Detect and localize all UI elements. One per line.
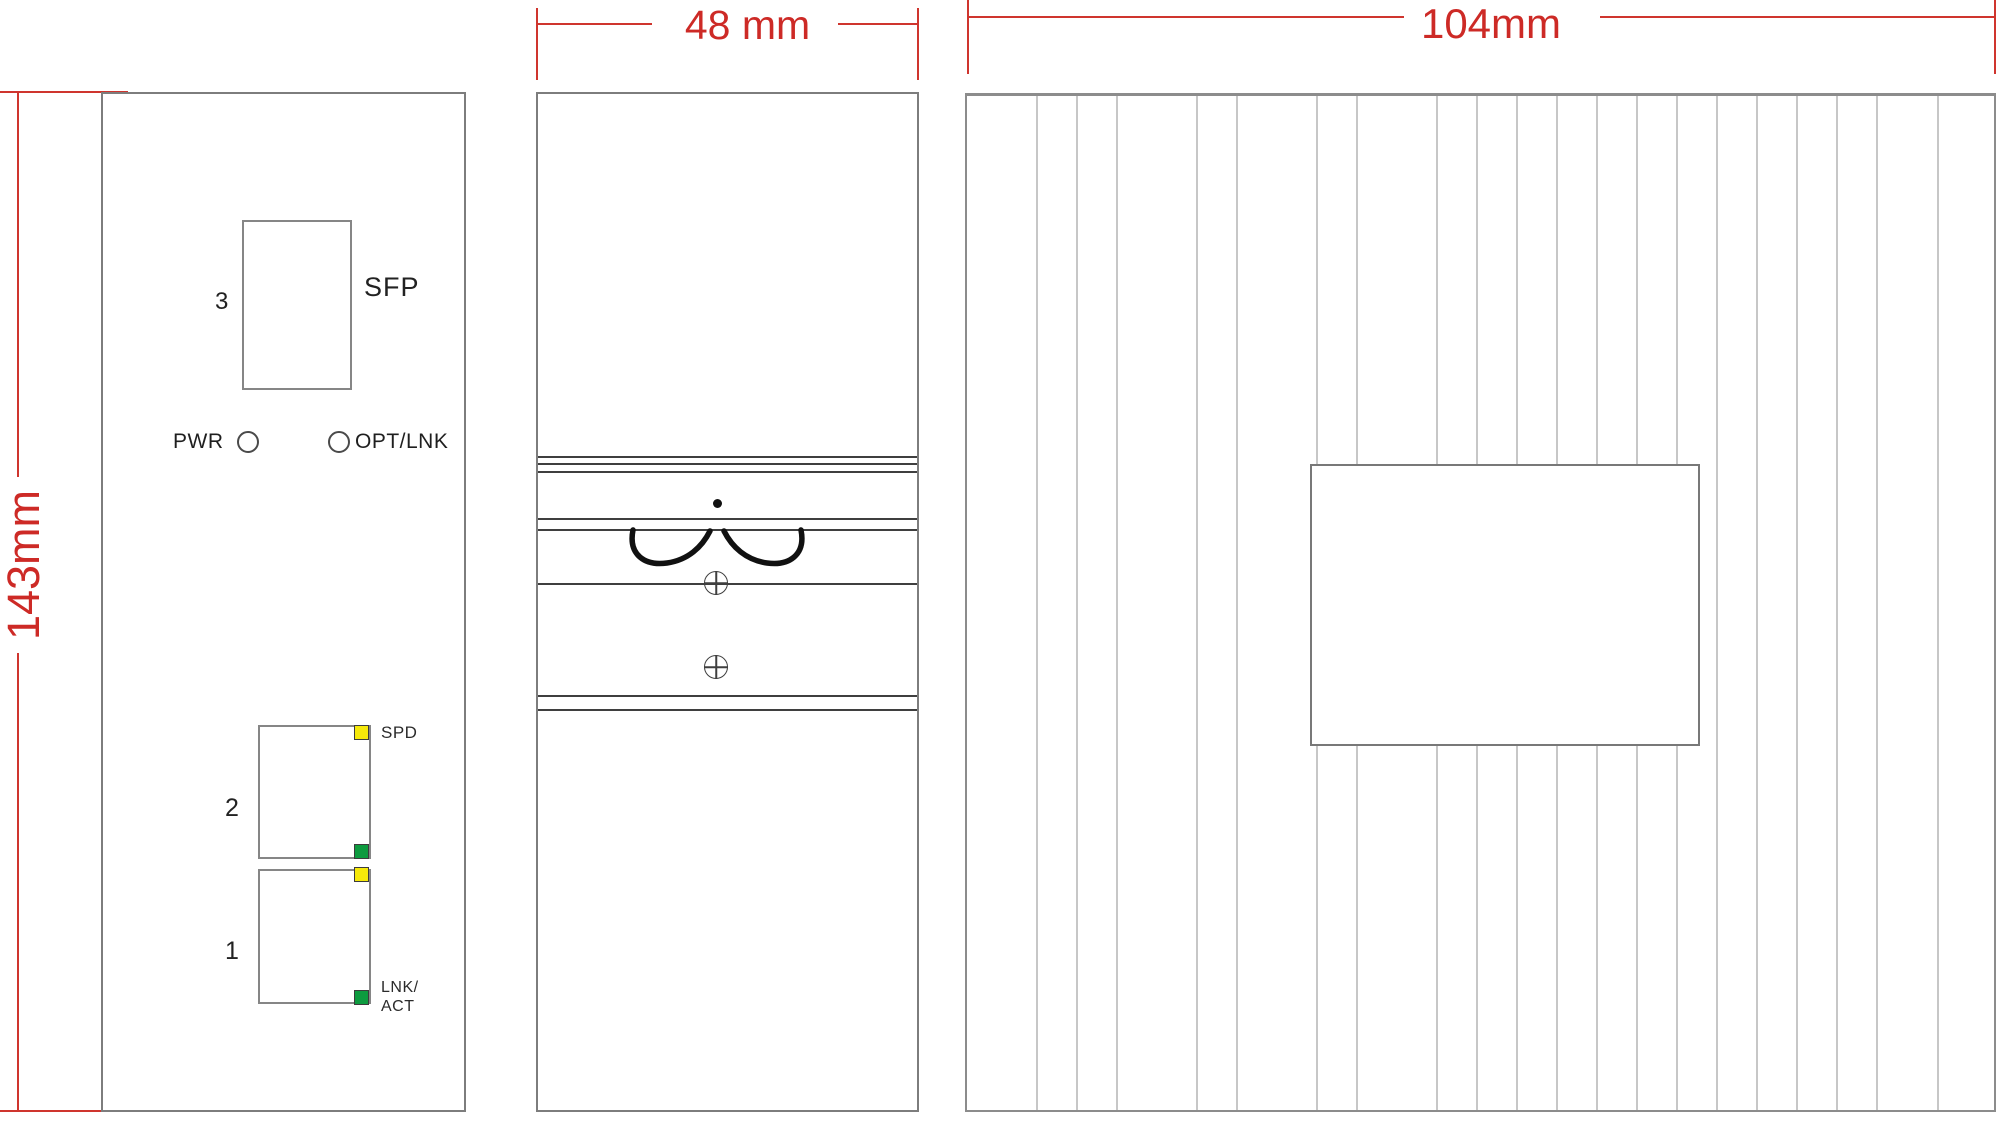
dimension-width-tick-right [1994, 0, 1996, 74]
heatsink-fin-line [1756, 96, 1758, 1110]
heatsink-fin-line [1876, 96, 1878, 1110]
sfp-port-slot [242, 220, 352, 390]
dimension-width-label: 104mm [1408, 0, 1574, 48]
dimension-width-line-left [968, 16, 1404, 18]
dimension-depth-tick-left [536, 8, 538, 80]
side-groove-line [538, 456, 917, 458]
front-view-panel: 3 SFP PWR OPT/LNK SPD 2 LNK/ ACT 1 [101, 92, 466, 1112]
side-groove-line [538, 518, 917, 520]
dimension-depth-tick-right [917, 8, 919, 80]
screw-cross-icon [704, 655, 728, 679]
sfp-port-number: 3 [215, 288, 228, 316]
lnk-act-label: LNK/ ACT [381, 978, 419, 1016]
mounting-hole-dot [713, 499, 722, 508]
side-groove-line [538, 463, 917, 465]
screw-cross-icon [704, 571, 728, 595]
heatsink-fin-line [1937, 96, 1939, 1110]
port2-link-led [354, 844, 369, 859]
rj45-port-2 [258, 725, 371, 859]
dimension-width-tick-left [967, 0, 969, 74]
heatsink-fin-line [1036, 96, 1038, 1110]
opt-lnk-label: OPT/LNK [355, 430, 448, 454]
sfp-port-label: SFP [364, 272, 420, 303]
heatsink-fin-line [1836, 96, 1838, 1110]
spd-label: SPD [381, 723, 417, 743]
port1-number: 1 [225, 937, 239, 966]
side-view-panel [536, 92, 919, 1112]
dimension-depth-line-right [838, 23, 918, 25]
heatsink-fin-line [1796, 96, 1798, 1110]
heatsink-fin-line [1236, 96, 1238, 1110]
pwr-indicator-icon [237, 431, 259, 453]
dimension-depth-line-left [537, 23, 652, 25]
port1-speed-led [354, 867, 369, 882]
engineering-drawing: 143mm 48 mm 104mm 3 SFP PWR OPT/LNK SPD … [0, 0, 2000, 1148]
side-groove-line [538, 709, 917, 711]
port1-link-led [354, 990, 369, 1005]
dimension-depth-label: 48 mm [655, 2, 840, 49]
opt-lnk-indicator-icon [328, 431, 350, 453]
dimension-width-line-right [1600, 16, 1996, 18]
lnk-act-line1: LNK/ [381, 979, 419, 996]
din-rail-clip-icon [624, 524, 839, 572]
label-plate [1310, 464, 1700, 746]
port2-speed-led [354, 725, 369, 740]
port2-number: 2 [225, 794, 239, 823]
heatsink-fin-line [1076, 96, 1078, 1110]
dimension-height-line-lower [17, 653, 19, 1112]
dimension-height-line-upper [17, 92, 19, 477]
heatsink-fin-line [1116, 96, 1118, 1110]
heatsink-fin-line [1196, 96, 1198, 1110]
pwr-label: PWR [173, 430, 224, 454]
side-groove-line [538, 695, 917, 697]
top-view-panel [965, 93, 1996, 1112]
lnk-act-line2: ACT [381, 998, 415, 1015]
dimension-height-label: 143mm [1, 480, 47, 650]
heatsink-fin-line [1716, 96, 1718, 1110]
rj45-port-1 [258, 869, 371, 1004]
side-groove-line [538, 471, 917, 473]
